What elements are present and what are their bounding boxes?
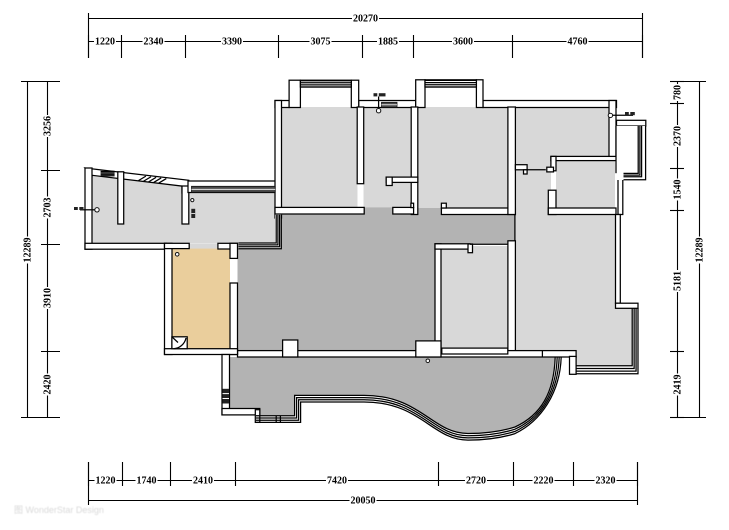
svg-text:12289: 12289 [695,238,706,263]
svg-text:3390: 3390 [222,37,242,48]
svg-text:2419: 2419 [673,375,684,395]
svg-text:2410: 2410 [193,476,213,487]
svg-text:5181: 5181 [673,271,684,291]
svg-text:12289: 12289 [23,238,34,263]
svg-text:1220: 1220 [96,476,116,487]
svg-text:2340: 2340 [144,37,164,48]
svg-text:图 WonderStar Design: 图 WonderStar Design [14,505,104,515]
svg-text:3256: 3256 [43,116,54,136]
svg-text:780: 780 [673,85,684,100]
svg-text:1220: 1220 [95,37,115,48]
svg-text:3600: 3600 [453,37,473,48]
svg-text:1885: 1885 [378,37,398,48]
svg-text:20270: 20270 [353,14,378,25]
svg-text:2370: 2370 [673,126,684,146]
svg-text:2420: 2420 [43,375,54,395]
svg-text:20050: 20050 [351,496,376,507]
svg-text:2703: 2703 [43,198,54,218]
svg-text:3910: 3910 [43,288,54,308]
svg-text:7420: 7420 [327,476,347,487]
svg-text:2720: 2720 [466,476,486,487]
svg-text:1540: 1540 [673,180,684,200]
svg-text:2320: 2320 [596,476,616,487]
svg-text:3075: 3075 [311,37,331,48]
svg-text:1740: 1740 [137,476,157,487]
svg-text:2220: 2220 [534,476,554,487]
svg-text:4760: 4760 [568,37,588,48]
